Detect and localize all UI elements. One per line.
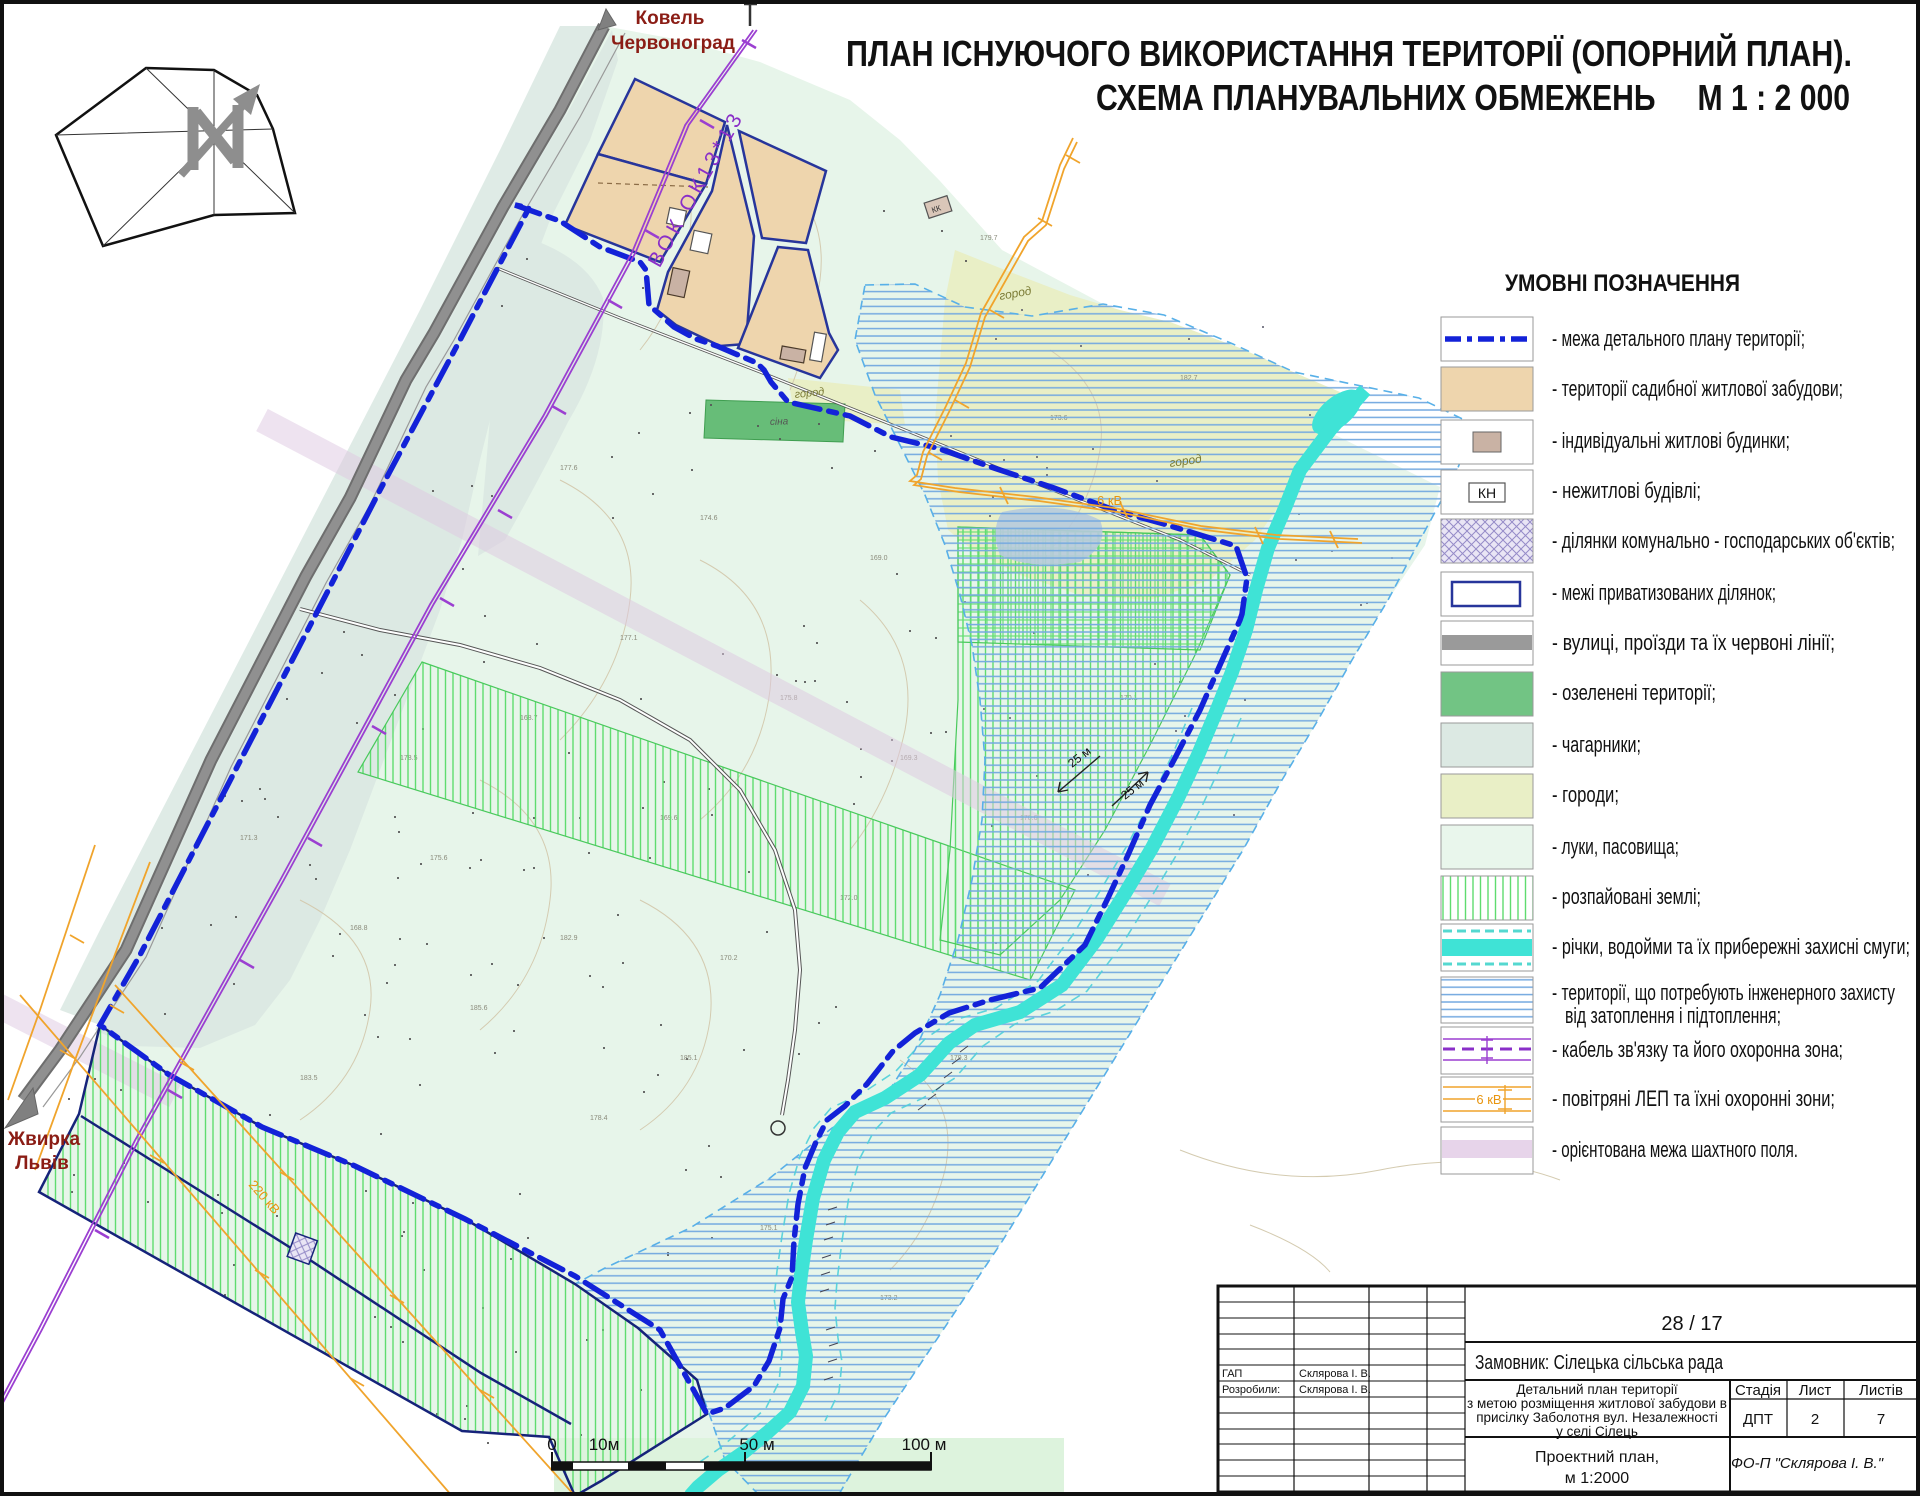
svg-text:169.0: 169.0 bbox=[870, 555, 888, 562]
svg-text:168.8: 168.8 bbox=[350, 925, 368, 932]
svg-text:185.1: 185.1 bbox=[680, 1055, 698, 1062]
svg-text:6 кВ: 6 кВ bbox=[1097, 493, 1122, 508]
svg-text:Склярова І. В.: Склярова І. В. bbox=[1299, 1368, 1371, 1380]
svg-text:7: 7 bbox=[1877, 1411, 1885, 1428]
svg-text:УМОВНІ ПОЗНАЧЕННЯ: УМОВНІ ПОЗНАЧЕННЯ bbox=[1505, 270, 1740, 297]
svg-text:від затоплення і підтоплення;: від затоплення і підтоплення; bbox=[1565, 1003, 1781, 1028]
svg-text:ГАП: ГАП bbox=[1222, 1368, 1242, 1380]
svg-text:170.2: 170.2 bbox=[720, 955, 738, 962]
svg-text:Стадія: Стадія bbox=[1735, 1382, 1781, 1399]
svg-text:ПЛАН ІСНУЮЧОГО ВИКОРИСТАННЯ ТЕ: ПЛАН ІСНУЮЧОГО ВИКОРИСТАННЯ ТЕРИТОРІЇ (О… bbox=[846, 32, 1852, 74]
svg-text:Червоноград: Червоноград bbox=[611, 33, 735, 54]
svg-text:- повітряні ЛЕП та їхні охорон: - повітряні ЛЕП та їхні охоронні зони; bbox=[1552, 1086, 1835, 1111]
svg-text:- розпайовані землі;: - розпайовані землі; bbox=[1552, 884, 1701, 909]
svg-text:175.6: 175.6 bbox=[430, 855, 448, 862]
svg-text:КН: КН bbox=[1478, 485, 1496, 501]
svg-text:- городи;: - городи; bbox=[1552, 782, 1619, 807]
svg-text:ДПТ: ДПТ bbox=[1743, 1411, 1773, 1428]
svg-text:177.6: 177.6 bbox=[560, 465, 578, 472]
svg-text:171.3: 171.3 bbox=[240, 835, 258, 842]
svg-text:м 1:2000: м 1:2000 bbox=[1565, 1470, 1629, 1487]
svg-text:- межа детального плану терито: - межа детального плану території; bbox=[1552, 326, 1805, 351]
svg-text:28 / 17: 28 / 17 bbox=[1661, 1313, 1722, 1335]
svg-text:- кабель зв'язку та його охоро: - кабель зв'язку та його охоронна зона; bbox=[1552, 1037, 1843, 1062]
svg-text:Склярова І. В.: Склярова І. В. bbox=[1299, 1384, 1371, 1396]
svg-text:сіна: сіна bbox=[770, 416, 789, 428]
svg-text:- індивідуальні житлові будинк: - індивідуальні житлові будинки; bbox=[1552, 428, 1790, 453]
svg-text:- ділянки комунально - господа: - ділянки комунально - господарських об'… bbox=[1552, 528, 1895, 553]
svg-text:6 кВ: 6 кВ bbox=[1476, 1092, 1501, 1107]
svg-text:Проектний план,: Проектний план, bbox=[1535, 1449, 1659, 1466]
svg-text:- чагарники;: - чагарники; bbox=[1552, 732, 1641, 757]
svg-text:з метою розміщення житлової за: з метою розміщення житлової забудови в bbox=[1467, 1396, 1727, 1411]
svg-text:- орієнтована межа шахтного по: - орієнтована межа шахтного поля. bbox=[1552, 1137, 1798, 1162]
svg-text:присілку Заболотня вул. Незале: присілку Заболотня вул. Незалежності bbox=[1476, 1410, 1718, 1425]
svg-text:Детальний план території: Детальний план території bbox=[1516, 1382, 1677, 1397]
svg-text:179.7: 179.7 bbox=[980, 235, 998, 242]
svg-text:Листів: Листів bbox=[1859, 1382, 1903, 1399]
svg-text:- озеленені території;: - озеленені території; bbox=[1552, 680, 1716, 705]
svg-text:Лист: Лист bbox=[1799, 1382, 1832, 1399]
svg-text:- річки, водойми та їх прибере: - річки, водойми та їх прибережні захисн… bbox=[1552, 934, 1910, 959]
svg-text:0: 0 bbox=[547, 1435, 556, 1454]
svg-text:ФО-П "Склярова І. В.": ФО-П "Склярова І. В." bbox=[1731, 1455, 1884, 1472]
svg-text:- межі приватизованих ділянок;: - межі приватизованих ділянок; bbox=[1552, 580, 1776, 605]
svg-text:10м: 10м bbox=[589, 1435, 620, 1454]
svg-text:Ковель: Ковель bbox=[636, 8, 705, 29]
svg-text:- території, що потребують інж: - території, що потребують інженерного з… bbox=[1552, 980, 1895, 1005]
svg-text:178.4: 178.4 bbox=[590, 1115, 608, 1122]
svg-text:174.6: 174.6 bbox=[700, 515, 718, 522]
svg-text:100 м: 100 м bbox=[902, 1435, 947, 1454]
svg-text:у селі Сілець: у селі Сілець bbox=[1556, 1424, 1638, 1439]
svg-text:Розробили:: Розробили: bbox=[1222, 1384, 1280, 1396]
svg-text:- території садибної житлової: - території садибної житлової забудови; bbox=[1552, 376, 1843, 401]
svg-text:Львів: Львів bbox=[15, 1153, 69, 1174]
svg-text:Замовник: Сілецька сільська ра: Замовник: Сілецька сільська рада bbox=[1475, 1352, 1724, 1374]
svg-text:50 м: 50 м bbox=[739, 1435, 774, 1454]
svg-text:- луки, пасовища;: - луки, пасовища; bbox=[1552, 834, 1679, 859]
svg-text:2: 2 bbox=[1811, 1411, 1819, 1428]
svg-text:СХЕМА ПЛАНУВАЛЬНИХ ОБМЕЖЕНЬ: СХЕМА ПЛАНУВАЛЬНИХ ОБМЕЖЕНЬ М 1 : 2 000 bbox=[1096, 77, 1850, 118]
svg-text:177.1: 177.1 bbox=[620, 635, 638, 642]
svg-text:Жвирка: Жвирка bbox=[7, 1129, 81, 1150]
svg-text:- вулиці, проїзди та їх червон: - вулиці, проїзди та їх червоні лінії; bbox=[1552, 630, 1835, 655]
svg-text:185.6: 185.6 bbox=[470, 1005, 488, 1012]
svg-text:183.5: 183.5 bbox=[300, 1075, 318, 1082]
svg-text:- нежитлові будівлі;: - нежитлові будівлі; bbox=[1552, 478, 1701, 503]
svg-text:182.9: 182.9 bbox=[560, 935, 578, 942]
